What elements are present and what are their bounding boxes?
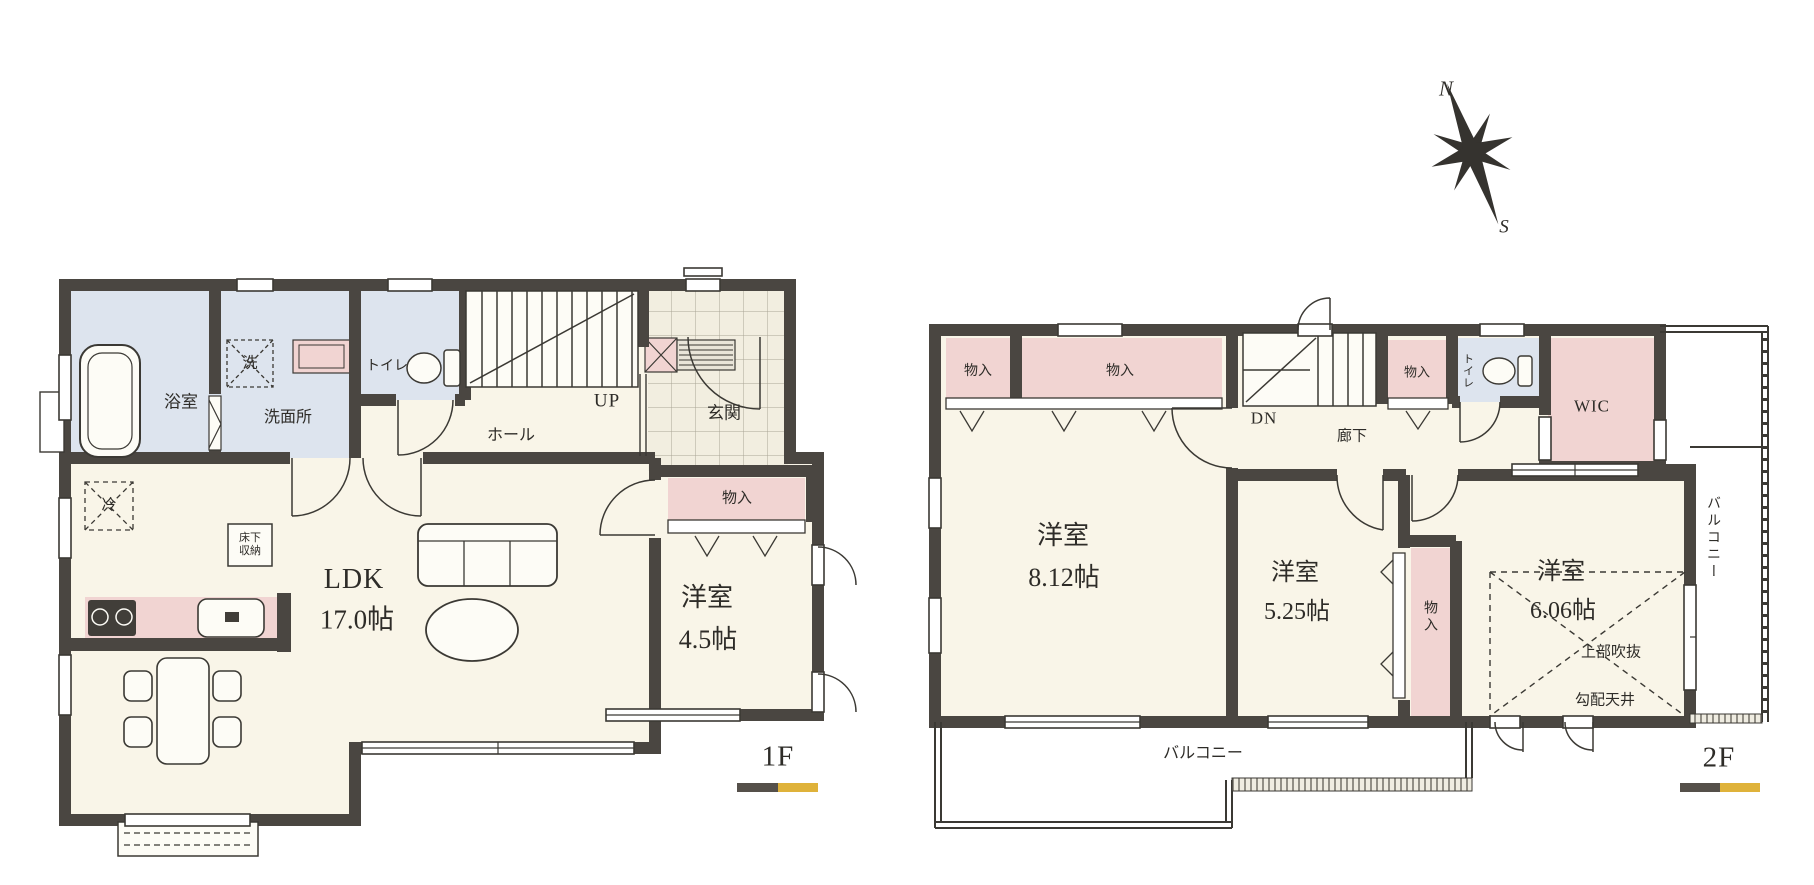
kitchen-stove xyxy=(88,600,136,636)
bathtub xyxy=(80,345,140,457)
fridge-label: 冷 xyxy=(101,499,116,514)
underfloor-storage-label: 床下収納 xyxy=(235,532,265,558)
washroom-label: 洗面所 xyxy=(264,410,312,426)
corridor-label: 廊下 xyxy=(1337,430,1367,445)
toilet-bowl-2f xyxy=(1483,356,1532,386)
compass-south-label: S xyxy=(1499,218,1509,237)
balcony-bottom-rails xyxy=(935,722,1472,828)
room-1f-size: 4.5帖 xyxy=(679,627,738,653)
closet-c-label: 物入 xyxy=(1404,366,1430,379)
closet-d-label: 物入 xyxy=(1422,600,1436,634)
balcony-bottom-label: バルコニー xyxy=(1163,746,1243,762)
stairs-up xyxy=(466,291,638,387)
floor2-label: 2F xyxy=(1703,744,1736,773)
hall-label: ホール xyxy=(487,428,535,444)
floor1-plan xyxy=(40,268,856,856)
floor2-legend-bar-dark xyxy=(1680,783,1720,792)
stairs-down xyxy=(1243,333,1376,406)
closet-b-label: 物入 xyxy=(1106,365,1134,379)
floor1-legend-bar-gold xyxy=(778,783,818,792)
room1-label: 洋室 xyxy=(1037,523,1089,549)
room-1f-label: 洋室 xyxy=(681,585,733,611)
sloped-ceiling-label: 勾配天井 xyxy=(1575,694,1635,709)
sofa xyxy=(418,524,557,586)
entrance-tile-floor xyxy=(648,291,788,471)
toilet-bowl-1f xyxy=(407,350,460,386)
floor2-legend-bar-gold xyxy=(1720,783,1760,792)
compass-north-label: N xyxy=(1439,79,1453,100)
balcony-side-label: バルコニー xyxy=(1705,496,1719,581)
washer-label: 洗 xyxy=(242,357,257,372)
floor1-label: 1F xyxy=(762,743,795,772)
room3-label: 洋室 xyxy=(1537,560,1585,584)
closet-1f-label: 物入 xyxy=(722,492,752,507)
ldk-label: LDK xyxy=(324,566,385,594)
room1-size: 8.12帖 xyxy=(1028,565,1100,591)
closet-a-label: 物入 xyxy=(964,365,992,379)
floor-plan-drawing xyxy=(0,0,1814,885)
compass-rose-icon xyxy=(1407,69,1539,239)
stairs-up-label: UP xyxy=(594,392,620,411)
toilet-2f-label: トイレ xyxy=(1462,353,1473,389)
room2-label: 洋室 xyxy=(1271,561,1319,585)
floor1-legend-bar-dark xyxy=(737,783,778,792)
toilet-1f-label: トイレ xyxy=(366,360,408,374)
entrance-label: 玄関 xyxy=(707,405,741,422)
floor-plan-canvas: 浴室 洗 洗面所 トイレ UP ホール 玄関 物入 洋室 4.5帖 LDK 17… xyxy=(0,0,1814,885)
room3-size: 6.06帖 xyxy=(1530,599,1596,623)
void-above-label: 上部吹抜 xyxy=(1581,646,1641,661)
round-table xyxy=(426,599,518,661)
deck xyxy=(118,822,258,856)
ldk-size: 17.0帖 xyxy=(320,607,394,634)
room2-size: 5.25帖 xyxy=(1264,600,1330,624)
stairs-down-label: DN xyxy=(1251,410,1278,427)
kitchen-sink xyxy=(198,599,264,637)
wic-label: WIC xyxy=(1574,398,1610,415)
bath-label: 浴室 xyxy=(164,394,198,411)
